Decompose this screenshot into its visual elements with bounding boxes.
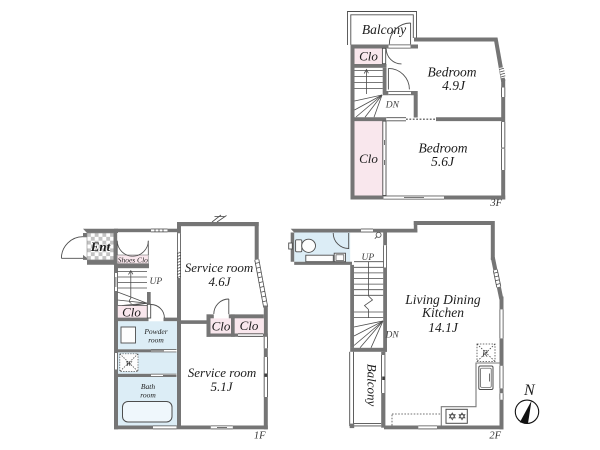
svg-text:Clo: Clo (359, 49, 378, 64)
svg-text:Service room: Service room (185, 260, 253, 275)
svg-text:DN: DN (385, 101, 400, 111)
svg-text:UP: UP (362, 253, 375, 263)
svg-text:W: W (126, 359, 133, 368)
svg-text:4.6J: 4.6J (208, 274, 231, 289)
svg-text:5.1J: 5.1J (210, 379, 233, 394)
svg-text:Kitchen: Kitchen (421, 305, 464, 320)
svg-text:5.6J: 5.6J (431, 154, 455, 169)
svg-text:N: N (523, 382, 536, 399)
svg-text:R: R (481, 350, 488, 360)
svg-text:4.9J: 4.9J (442, 78, 466, 93)
svg-text:Clo: Clo (359, 151, 378, 166)
svg-text:room: room (148, 336, 164, 345)
svg-text:DN: DN (385, 331, 400, 341)
svg-text:room: room (140, 391, 156, 400)
svg-text:14.1J: 14.1J (428, 320, 459, 335)
svg-text:UP: UP (150, 277, 163, 287)
svg-text:3F: 3F (489, 198, 502, 209)
svg-text:Shoes Clo: Shoes Clo (118, 255, 148, 264)
svg-text:Balcony: Balcony (362, 22, 406, 37)
svg-text:2F: 2F (489, 431, 501, 442)
svg-text:Clo: Clo (240, 318, 259, 333)
svg-text:Service room: Service room (188, 365, 256, 380)
svg-text:Ent: Ent (90, 239, 111, 254)
svg-text:Clo: Clo (212, 319, 231, 334)
svg-text:Clo: Clo (122, 305, 141, 320)
svg-text:Balcony: Balcony (365, 364, 380, 407)
svg-text:1F: 1F (254, 431, 266, 442)
